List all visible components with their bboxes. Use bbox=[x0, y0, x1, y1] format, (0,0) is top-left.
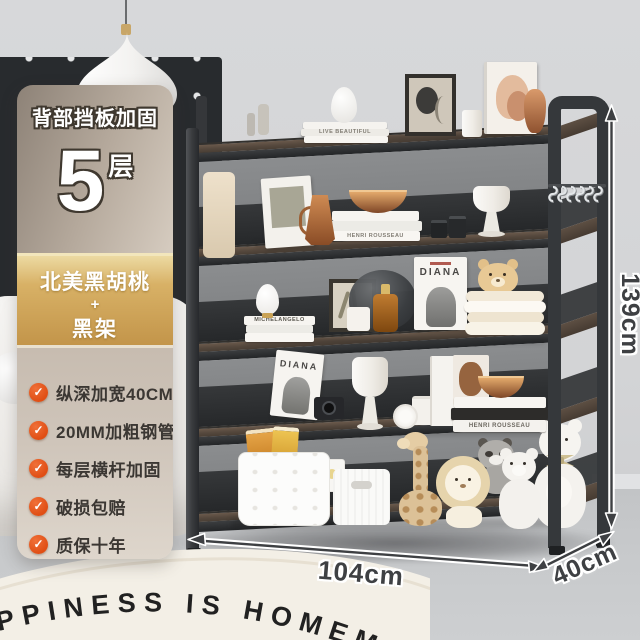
camera-lens bbox=[322, 401, 336, 415]
feature-item: ✓ 破损包赔 bbox=[29, 494, 173, 519]
goblet-base bbox=[357, 423, 383, 430]
decor-candle-jar bbox=[347, 307, 370, 331]
decor-art-frame bbox=[405, 74, 456, 136]
blanket bbox=[465, 322, 545, 335]
decor-egg-lamp-base bbox=[262, 313, 273, 318]
check-icon: ✓ bbox=[29, 459, 48, 478]
lion-eyes bbox=[455, 478, 458, 481]
badge-material: 北美黑胡桃 + 黑架 bbox=[17, 253, 173, 345]
check-icon: ✓ bbox=[29, 383, 48, 402]
decor-egg-lamp bbox=[256, 284, 279, 315]
feature-item: ✓ 质保十年 bbox=[29, 532, 173, 557]
decor-lion-plush bbox=[436, 456, 492, 528]
decor-goblet-vase bbox=[469, 186, 514, 237]
book bbox=[245, 333, 314, 342]
decor-glass-bottle bbox=[258, 104, 269, 135]
diana-portrait-2 bbox=[281, 376, 312, 416]
decor-copper-vase bbox=[524, 89, 546, 133]
book bbox=[246, 325, 313, 333]
lion-face bbox=[445, 465, 481, 501]
goblet-cup bbox=[352, 357, 388, 397]
decor-book-stack-3: MICHELANGELO bbox=[244, 316, 315, 342]
bottle-body bbox=[373, 294, 398, 332]
teddy-muzzle bbox=[512, 465, 526, 476]
decor-cup bbox=[462, 110, 482, 137]
bear-eyes bbox=[489, 273, 492, 276]
tier-unit: 层 bbox=[108, 147, 133, 183]
check-icon: ✓ bbox=[29, 421, 48, 440]
goblet-foot bbox=[483, 212, 500, 233]
feature-label: 纵深加宽40CM bbox=[56, 380, 173, 405]
feature-item: ✓ 每层横杆加固 bbox=[29, 456, 173, 481]
diana-title-2: DIANA bbox=[275, 358, 324, 373]
feature-item: ✓ 20MM加粗钢管 bbox=[29, 418, 173, 443]
decor-egg-ornament bbox=[331, 87, 357, 123]
book bbox=[303, 122, 387, 129]
decor-storage-basket-1 bbox=[238, 452, 330, 526]
book-spine-label: HENRI ROUSSEAU bbox=[453, 420, 546, 432]
decor-teddy-head bbox=[478, 263, 518, 294]
product-showcase: LIVE BEAUTIFUL HENRI ROUSSEAU MICHELANGE… bbox=[0, 0, 640, 640]
feature-item: ✓ 纵深加宽40CM bbox=[29, 380, 173, 405]
book-spine-label: LIVE BEAUTIFUL bbox=[301, 129, 389, 136]
check-icon: ✓ bbox=[29, 535, 48, 554]
frame-art-arc bbox=[435, 96, 452, 124]
diana-title: DIANA bbox=[414, 267, 467, 278]
lion-nose bbox=[460, 484, 466, 488]
giraffe-neck bbox=[413, 446, 428, 494]
decor-book-stack-top: LIVE BEAUTIFUL bbox=[301, 122, 389, 143]
decor-book-stack-4: HENRI ROUSSEAU bbox=[451, 397, 548, 432]
teddy-body bbox=[499, 479, 541, 529]
cover-accent-line bbox=[430, 262, 451, 265]
decor-glass-bottle-small bbox=[247, 113, 255, 136]
material-line1: 北美黑胡桃 bbox=[17, 256, 173, 296]
badge-top: 背部挡板加固 5 层 bbox=[17, 85, 173, 253]
decor-book-stack-2: HENRI ROUSSEAU bbox=[329, 211, 422, 242]
feature-label: 破损包赔 bbox=[56, 494, 126, 519]
goblet-cup bbox=[473, 186, 510, 212]
decor-goblet-vase-2 bbox=[347, 357, 393, 430]
book-spine-label: MICHELANGELO bbox=[244, 316, 315, 325]
shelf-right-frame bbox=[548, 96, 610, 548]
feature-list: ✓ 纵深加宽40CM ✓ 20MM加粗钢管 ✓ 每层横杆加固 ✓ 破损包赔 ✓ … bbox=[17, 345, 173, 559]
giraffe-snout bbox=[397, 438, 410, 449]
width-dimension-label: 104cm bbox=[317, 555, 405, 593]
check-icon: ✓ bbox=[29, 497, 48, 516]
decor-storage-basket-2 bbox=[333, 469, 390, 525]
height-dimension-label: 139cm bbox=[615, 273, 640, 356]
lion-body bbox=[446, 506, 482, 528]
feature-label: 20MM加粗钢管 bbox=[56, 418, 173, 443]
info-panel: 背部挡板加固 5 层 北美黑胡桃 + 黑架 ✓ 纵深加宽40CM ✓ 20MM加… bbox=[17, 85, 173, 559]
book bbox=[329, 221, 422, 231]
decor-blanket-stack bbox=[464, 291, 546, 335]
book-spine-label: HENRI ROUSSEAU bbox=[331, 231, 420, 241]
decor-canvas-panel bbox=[203, 172, 235, 258]
decor-camera bbox=[314, 397, 344, 419]
material-plus: + bbox=[17, 296, 173, 313]
book bbox=[451, 408, 548, 420]
s-hooks bbox=[546, 178, 610, 222]
decor-plate bbox=[393, 404, 418, 429]
book bbox=[304, 136, 388, 143]
feature-label: 质保十年 bbox=[56, 532, 126, 557]
shelf-foot-right-front bbox=[549, 546, 565, 555]
tier-number: 5 bbox=[57, 133, 105, 229]
diana-portrait bbox=[426, 287, 456, 327]
badge-top-title: 背部挡板加固 bbox=[17, 85, 173, 131]
decor-diana-book: DIANA bbox=[414, 257, 467, 330]
teddy-eyes bbox=[510, 462, 513, 465]
decor-teddy-bear-1 bbox=[496, 452, 542, 528]
hook-rail bbox=[548, 184, 606, 188]
book bbox=[454, 397, 546, 408]
goblet-foot bbox=[362, 397, 378, 424]
decor-amber-bottle bbox=[373, 284, 398, 332]
shelf-left-post bbox=[186, 128, 199, 552]
bear-nose bbox=[496, 279, 500, 282]
decor-black-cup-2 bbox=[449, 216, 466, 238]
basket-handle-slot bbox=[351, 481, 372, 489]
goblet-base bbox=[478, 231, 505, 237]
feature-label: 每层横杆加固 bbox=[56, 456, 161, 481]
decor-black-cup-1 bbox=[431, 220, 447, 238]
material-line2: 黑架 bbox=[17, 313, 173, 343]
